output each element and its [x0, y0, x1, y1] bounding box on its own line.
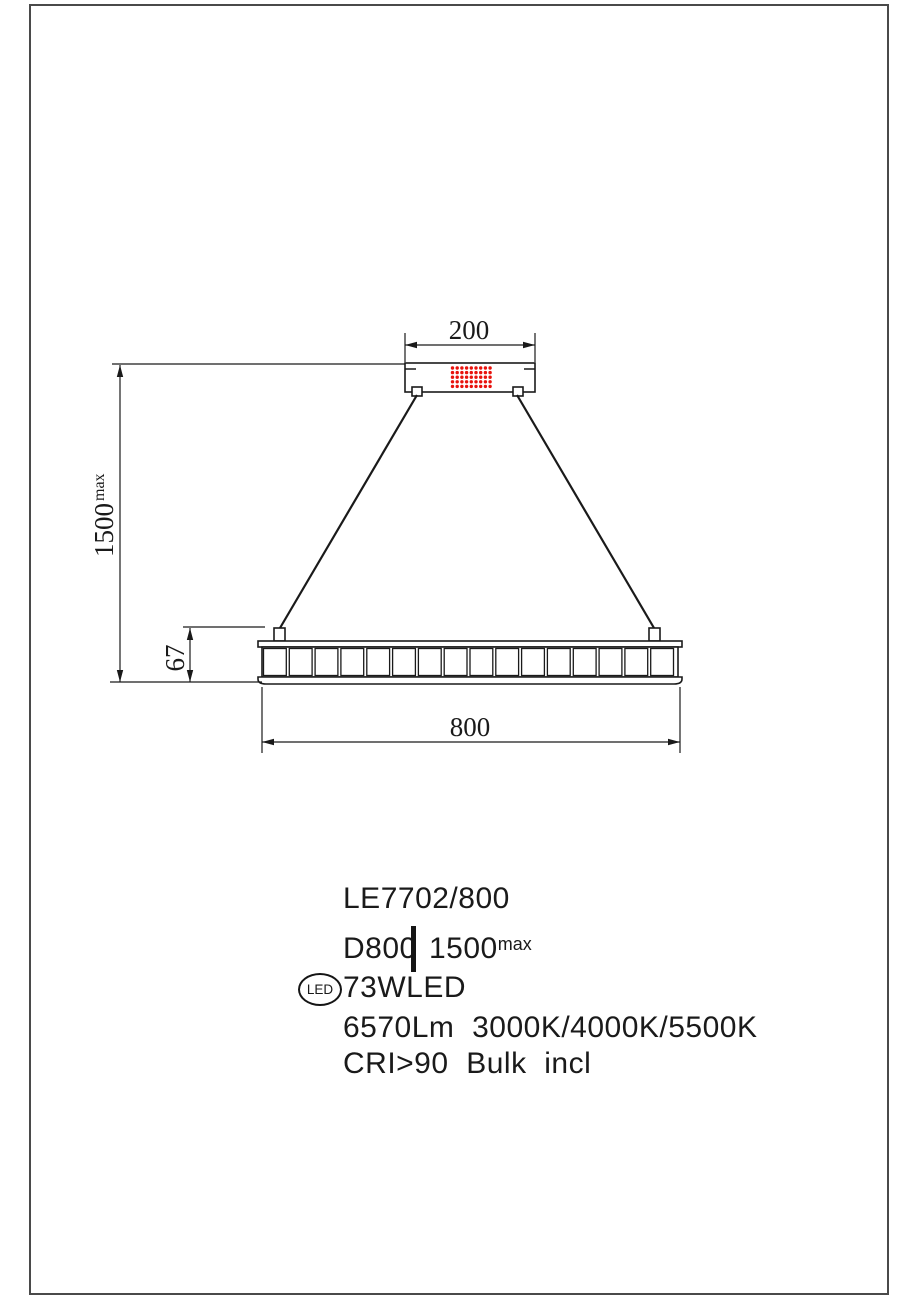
spec-divider-bar — [411, 926, 416, 972]
arrow-left-icon — [262, 739, 274, 745]
dim-label-ring-diameter: 800 — [450, 712, 491, 742]
drawing-page: 200 1500 max 67 800 LE7702/800 D800 — [0, 0, 919, 1300]
dim-label-ring-height: 67 — [160, 645, 190, 672]
suspension-wire-right — [517, 395, 654, 628]
dim-suspension-height — [110, 364, 405, 682]
ring-bottom-diffuser — [258, 677, 682, 684]
ring-top-flange — [258, 641, 682, 647]
arrow-right-icon — [523, 342, 535, 348]
height-spec-sup: max — [498, 934, 532, 954]
diameter-spec: D800 — [343, 934, 417, 964]
arrow-left-icon — [405, 342, 417, 348]
canopy-wire-grip-left — [412, 387, 422, 396]
dim-label-suspension-height-sup: max — [91, 473, 108, 501]
luminaire-technical-drawing: 200 1500 max 67 800 — [0, 0, 919, 1300]
cri-bulb-spec: CRI>90 Bulk incl — [343, 1049, 591, 1079]
height-spec-value: 1500 — [429, 932, 498, 965]
ring-connector-right — [649, 628, 660, 641]
svg-text:1500: 1500 — [89, 503, 119, 557]
arrow-down-icon — [117, 670, 123, 682]
dim-label-canopy-width: 200 — [449, 315, 490, 345]
dim-label-suspension-height: 1500 max — [89, 473, 119, 557]
arrow-right-icon — [668, 739, 680, 745]
dim-ring-height — [183, 627, 265, 682]
driver-dot-grid — [451, 366, 492, 388]
ring-connector-left — [274, 628, 285, 641]
arrow-up-icon — [187, 628, 193, 640]
arrow-up-icon — [117, 365, 123, 377]
lumen-cct-spec: 6570Lm 3000K/4000K/5500K — [343, 1013, 758, 1043]
height-spec: 1500max — [429, 934, 532, 964]
led-badge-icon: LED — [298, 973, 342, 1006]
suspension-wire-left — [280, 395, 417, 628]
model-number: LE7702/800 — [343, 884, 510, 914]
wattage-spec: 73WLED — [343, 973, 466, 1003]
